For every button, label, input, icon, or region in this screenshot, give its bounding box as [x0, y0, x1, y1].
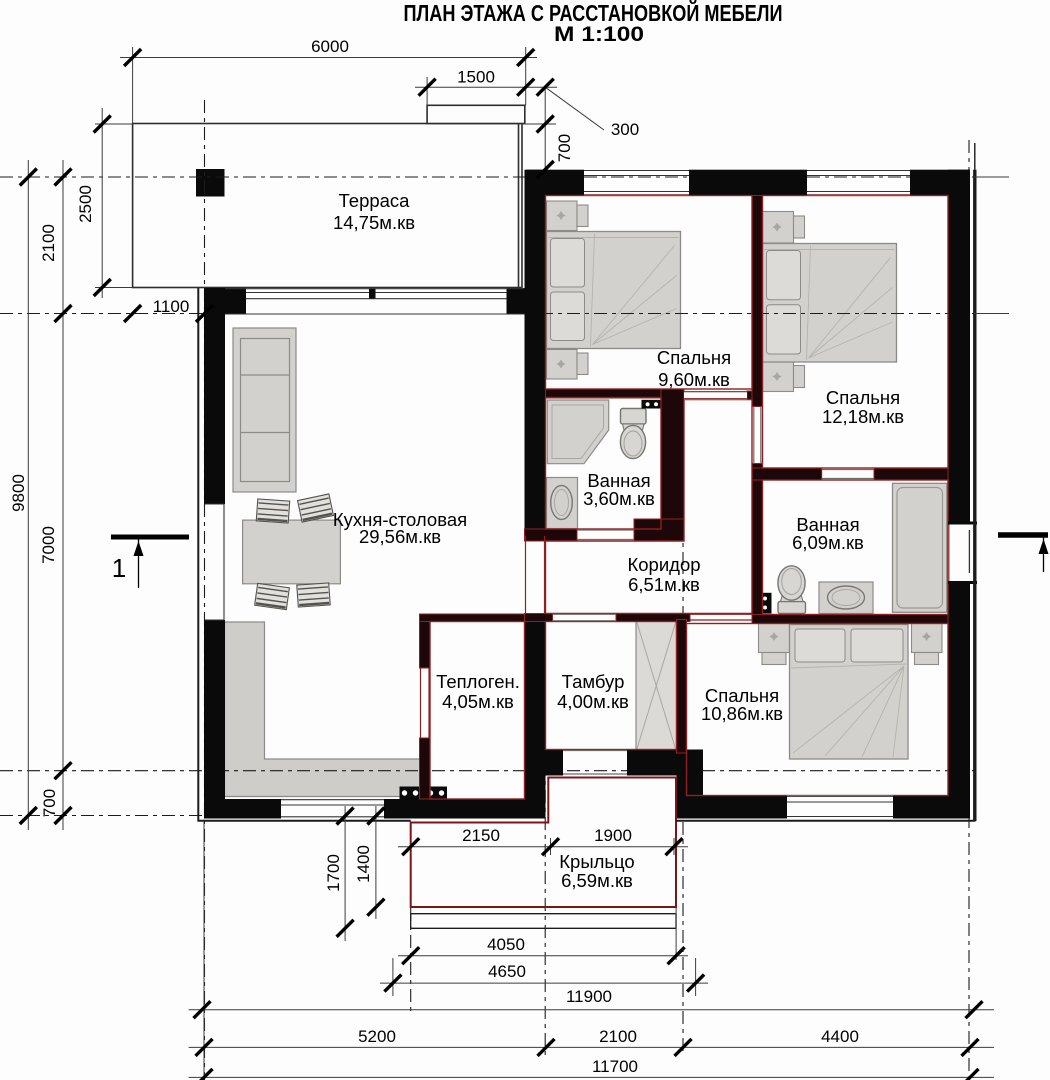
svg-text:4650: 4650	[488, 962, 526, 981]
svg-text:6000: 6000	[311, 37, 349, 56]
svg-text:11900: 11900	[566, 987, 612, 1006]
svg-text:11700: 11700	[592, 1057, 638, 1076]
svg-text:6,09м.кв: 6,09м.кв	[792, 532, 864, 553]
svg-text:700: 700	[40, 789, 59, 817]
svg-text:2150: 2150	[462, 826, 500, 845]
svg-text:4400: 4400	[821, 1027, 859, 1046]
svg-text:1: 1	[112, 553, 126, 583]
svg-text:4,00м.кв: 4,00м.кв	[557, 691, 629, 712]
svg-text:29,56м.кв: 29,56м.кв	[359, 526, 441, 547]
svg-text:2100: 2100	[39, 224, 58, 262]
svg-text:М 1:100: М 1:100	[554, 23, 644, 46]
svg-text:14,75м.кв: 14,75м.кв	[333, 212, 415, 233]
svg-text:700: 700	[555, 134, 574, 162]
svg-text:12,18м.кв: 12,18м.кв	[822, 406, 904, 427]
svg-text:Спальня: Спальня	[657, 347, 731, 368]
svg-text:2100: 2100	[599, 1027, 637, 1046]
svg-text:1400: 1400	[354, 845, 373, 883]
svg-text:1100: 1100	[153, 297, 190, 316]
svg-text:5200: 5200	[358, 1027, 396, 1046]
svg-text:9,60м.кв: 9,60м.кв	[658, 369, 730, 390]
svg-text:300: 300	[611, 120, 639, 139]
svg-text:Крыльцо: Крыльцо	[559, 851, 634, 872]
svg-text:9800: 9800	[9, 474, 28, 512]
svg-text:Теплоген.: Теплоген.	[436, 671, 520, 692]
svg-text:6,59м.кв: 6,59м.кв	[561, 870, 633, 891]
svg-text:2500: 2500	[76, 185, 95, 223]
svg-text:Спальня: Спальня	[826, 387, 900, 408]
svg-text:4050: 4050	[487, 935, 525, 954]
svg-text:1500: 1500	[457, 68, 495, 87]
svg-text:4,05м.кв: 4,05м.кв	[442, 691, 514, 712]
svg-text:1700: 1700	[324, 854, 343, 892]
svg-text:7000: 7000	[39, 526, 58, 564]
svg-text:Терраса: Терраса	[339, 190, 411, 211]
svg-text:6,51м.кв: 6,51м.кв	[628, 574, 700, 595]
svg-text:Тамбур: Тамбур	[562, 671, 625, 692]
svg-text:10,86м.кв: 10,86м.кв	[701, 703, 783, 724]
svg-text:Коридор: Коридор	[627, 554, 700, 575]
svg-text:3,60м.кв: 3,60м.кв	[583, 488, 655, 509]
svg-text:1900: 1900	[594, 826, 632, 845]
